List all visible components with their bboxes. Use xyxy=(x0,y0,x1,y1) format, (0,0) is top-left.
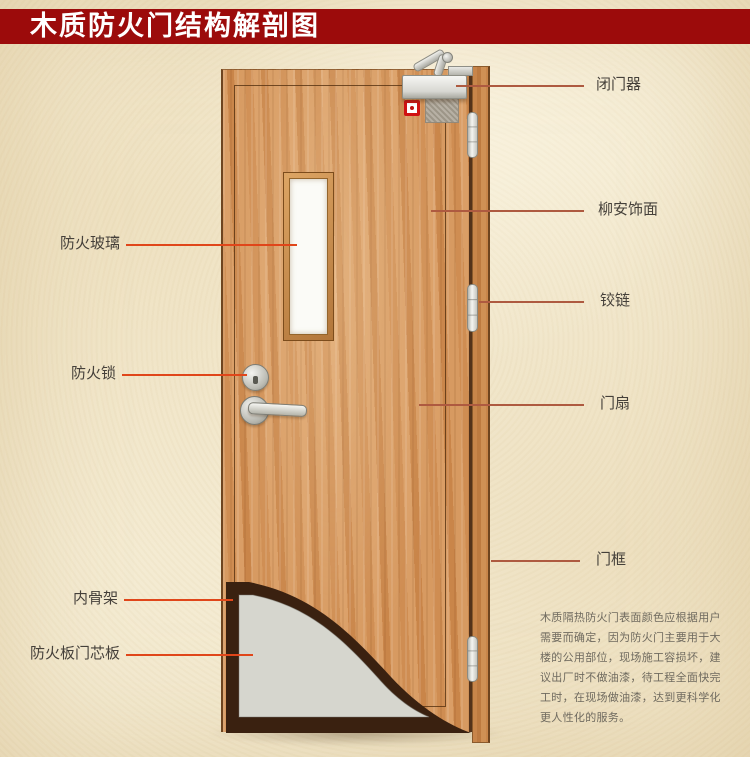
leader-line-door-leaf xyxy=(419,404,584,406)
title-banner: 木质防火门结构解剖图 xyxy=(0,9,750,44)
fire-glass-window xyxy=(283,172,334,341)
hinge-middle xyxy=(467,284,478,332)
label-door-leaf: 门扇 xyxy=(600,394,630,414)
hinge-bottom xyxy=(467,636,478,682)
description-line: 议出厂时不做油漆，待工程全面快完 xyxy=(540,668,735,688)
badge-dot xyxy=(410,106,414,110)
description-line: 木质隔热防火门表面颜色应根据用户 xyxy=(540,608,735,628)
label-core-board: 防火板门芯板 xyxy=(30,644,120,664)
page-background: 木质防火门结构解剖图 闭 xyxy=(0,0,750,757)
label-fire-glass: 防火玻璃 xyxy=(60,234,120,254)
label-inner-skeleton: 内骨架 xyxy=(73,589,118,609)
label-door-closer: 闭门器 xyxy=(596,75,641,95)
door-closer-vent xyxy=(425,98,459,123)
hinge-top xyxy=(467,112,478,158)
window-glass xyxy=(289,178,328,335)
page-title: 木质防火门结构解剖图 xyxy=(30,9,320,44)
description-text: 木质隔热防火门表面颜色应根据用户 需要而确定，因为防火门主要用于大 楼的公用部位… xyxy=(540,608,735,728)
description-line: 需要而确定，因为防火门主要用于大 xyxy=(540,628,735,648)
leader-line-fire-lock xyxy=(122,374,247,376)
leader-line-veneer xyxy=(431,210,584,212)
door-closer-body xyxy=(402,75,467,99)
description-line: 工时，在现场做油漆，达到更科学化 xyxy=(540,688,735,708)
label-hinge: 铰链 xyxy=(600,291,630,311)
leader-line-core-board xyxy=(126,654,253,656)
leader-line-door-closer xyxy=(456,85,584,87)
label-veneer: 柳安饰面 xyxy=(598,200,658,220)
description-line: 楼的公用部位，现场施工容损坏，建 xyxy=(540,648,735,668)
door-core-cutaway xyxy=(223,579,471,733)
door-closer-badge xyxy=(404,100,420,116)
keyhole xyxy=(253,376,258,384)
door-closer-arm-joint xyxy=(442,52,453,63)
leader-line-fire-glass xyxy=(126,244,297,246)
description-line: 更人性化的服务。 xyxy=(540,708,735,728)
leader-line-door-frame xyxy=(491,560,580,562)
lock-cylinder xyxy=(242,364,269,391)
leader-line-hinge xyxy=(479,301,584,303)
leader-line-inner-skeleton xyxy=(124,599,233,601)
label-door-frame: 门框 xyxy=(596,550,626,570)
label-fire-lock: 防火锁 xyxy=(71,364,116,384)
